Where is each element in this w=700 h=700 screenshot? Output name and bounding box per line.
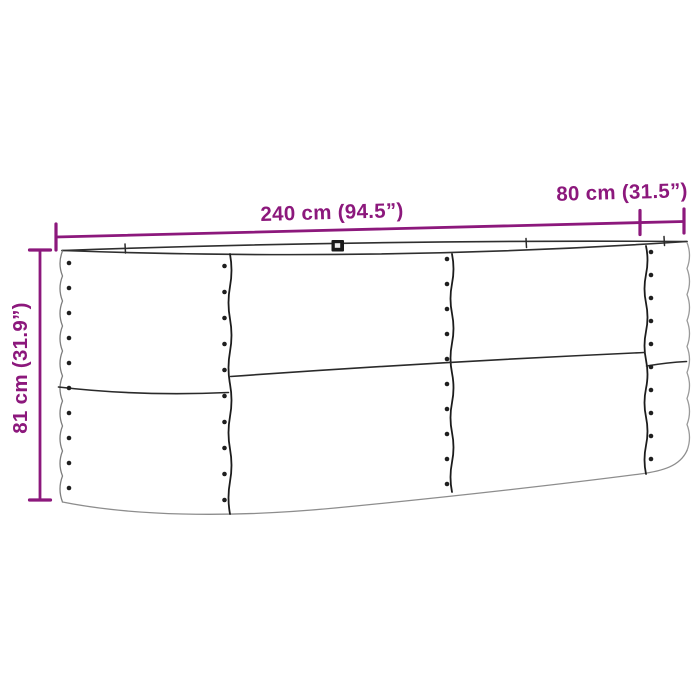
rivet-column-seam-right	[649, 250, 654, 462]
rivet	[445, 307, 450, 312]
planter-left-edge	[60, 251, 63, 502]
rivet-column-seam-left	[222, 264, 227, 503]
rim-back-edge	[62, 241, 687, 250]
dimension-labels: 240 cm (94.5”) 80 cm (31.5”) 81 cm (31.9…	[9, 179, 688, 434]
product-dimension-diagram: 240 cm (94.5”) 80 cm (31.5”) 81 cm (31.9…	[0, 0, 700, 700]
rim-seam-tick-middle	[526, 239, 527, 248]
rivet	[649, 434, 654, 439]
rivet-column-left-edge	[67, 261, 72, 491]
rivet	[67, 386, 72, 391]
rivet	[445, 332, 450, 337]
rivet	[222, 394, 227, 399]
panel-seam-middle	[451, 254, 454, 492]
rivet	[67, 286, 72, 291]
mid-seam-front	[231, 353, 645, 377]
rivet	[649, 273, 654, 278]
rivet	[649, 365, 654, 370]
rivet	[67, 436, 72, 441]
rivet	[445, 482, 450, 487]
rivet	[649, 319, 654, 324]
rivet	[649, 250, 654, 255]
rivet	[222, 342, 227, 347]
rivet	[222, 472, 227, 477]
rim-clip	[332, 240, 345, 252]
height-dimension-label: 81 cm (31.9”)	[9, 302, 32, 434]
rivet	[67, 461, 72, 466]
rivet	[67, 261, 72, 266]
rivet	[445, 382, 450, 387]
planter-drawing	[59, 237, 690, 515]
rivet	[222, 420, 227, 425]
length-dimension-label: 240 cm (94.5”)	[260, 199, 404, 226]
rivet	[445, 407, 450, 412]
dimension-diagram-svg: 240 cm (94.5”) 80 cm (31.5”) 81 cm (31.9…	[0, 0, 700, 700]
rivet-column-seam-middle	[445, 257, 450, 487]
rivet	[222, 446, 227, 451]
rivet	[649, 342, 654, 347]
rivet	[67, 361, 72, 366]
rivet	[445, 432, 450, 437]
rivet	[67, 311, 72, 316]
rivet	[649, 388, 654, 393]
rivet	[222, 316, 227, 321]
rivet	[67, 411, 72, 416]
rivet	[222, 498, 227, 503]
panel-seam-right	[645, 246, 648, 474]
length-dimension-line	[56, 222, 684, 238]
rivet	[222, 290, 227, 295]
rim-seam-tick-right	[664, 237, 665, 246]
rivet	[445, 282, 450, 287]
rivet	[67, 486, 72, 491]
rivet	[649, 411, 654, 416]
rim-seam-tick-left	[125, 244, 126, 253]
planter-right-edge	[687, 243, 690, 451]
depth-dimension-label: 80 cm (31.5”)	[556, 179, 688, 206]
rivet	[445, 257, 450, 262]
rivet	[67, 336, 72, 341]
panel-seam-left	[229, 254, 232, 514]
rivet	[222, 264, 227, 269]
mid-seam-left-cap	[59, 387, 229, 394]
rivet	[649, 296, 654, 301]
rivet	[649, 457, 654, 462]
rivet	[222, 368, 227, 373]
rivet	[445, 457, 450, 462]
rivet	[445, 357, 450, 362]
planter-bottom-edge	[63, 451, 688, 515]
